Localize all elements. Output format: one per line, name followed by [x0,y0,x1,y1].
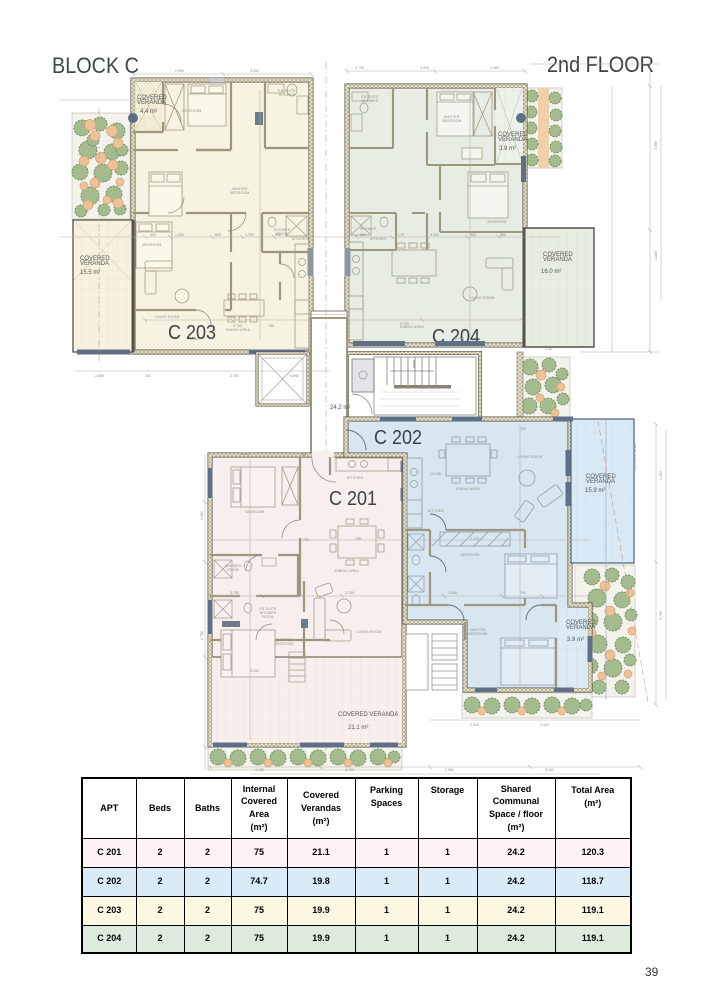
svg-text:KITCHEN: KITCHEN [370,237,387,241]
svg-text:800: 800 [215,233,221,237]
svg-text:900: 900 [275,233,281,237]
svg-text:3.700: 3.700 [233,324,242,328]
svg-text:900: 900 [470,233,476,237]
svg-text:2.750: 2.750 [355,66,364,70]
svg-text:3.150: 3.150 [255,768,264,772]
svg-text:10.245: 10.245 [430,472,441,476]
svg-text:OUTSIDE AREA: OUTSIDE AREA [633,443,637,470]
svg-text:4.150: 4.150 [659,471,663,480]
svg-text:ROOM: ROOM [262,615,273,619]
svg-text:1.700: 1.700 [245,233,254,237]
svg-text:ROOM: ROOM [227,568,238,572]
svg-text:3.750: 3.750 [345,591,354,595]
svg-text:3.750: 3.750 [230,591,239,595]
svg-text:COVERED VERANDA: COVERED VERANDA [338,712,398,718]
svg-text:2.750: 2.750 [200,631,204,640]
svg-text:2nd FLOOR: 2nd FLOOR [547,52,654,77]
svg-text:21.1 m²: 21.1 m² [348,725,368,731]
svg-text:LIVING ROOM: LIVING ROOM [518,455,543,459]
svg-text:SHOWER: SHOWER [362,99,379,103]
svg-text:3.9 m²: 3.9 m² [499,146,516,152]
svg-text:2.550: 2.550 [240,452,249,456]
svg-text:BEDROOM: BEDROOM [461,553,480,557]
svg-text:SHOWER: SHOWER [279,93,296,97]
svg-text:BLOCK C: BLOCK C [52,53,139,78]
svg-text:750: 750 [355,537,361,541]
svg-text:3.9 m²: 3.9 m² [567,637,584,643]
svg-text:3.40: 3.40 [545,347,552,351]
svg-text:16.0 m²: 16.0 m² [541,269,561,275]
svg-text:3.700: 3.700 [659,611,663,620]
svg-text:VERANDA: VERANDA [137,100,166,106]
svg-text:3.900: 3.900 [200,511,204,520]
svg-text:DINING AREA: DINING AREA [456,487,481,491]
svg-text:800: 800 [360,233,366,237]
svg-text:15.5 m²: 15.5 m² [80,270,100,276]
svg-text:3.100: 3.100 [540,723,549,727]
svg-text:C 202: C 202 [374,426,422,449]
svg-text:BEDROOM: BEDROOM [469,632,488,636]
svg-text:BEDROOM: BEDROOM [488,220,507,224]
svg-text:LIVING ROOM: LIVING ROOM [155,315,180,319]
svg-text:3.900: 3.900 [420,66,429,70]
svg-text:800: 800 [150,233,156,237]
svg-text:2.950: 2.950 [445,768,454,772]
svg-text:3.100: 3.100 [430,233,439,237]
svg-text:LIVING ROOM: LIVING ROOM [357,630,382,634]
svg-text:VERANDA: VERANDA [498,137,527,143]
svg-text:2.800: 2.800 [654,251,658,260]
svg-text:C 201: C 201 [329,487,377,510]
svg-text:15.9 m²: 15.9 m² [585,488,605,494]
svg-text:4.4 m²: 4.4 m² [140,109,157,115]
svg-text:6.850: 6.850 [290,374,299,378]
svg-text:DINING AREA: DINING AREA [226,328,251,332]
svg-text:BEDROOM: BEDROOM [246,510,265,514]
svg-text:BEDROOM: BEDROOM [275,642,294,646]
svg-text:3.100: 3.100 [545,768,554,772]
svg-text:1.170: 1.170 [470,537,479,541]
svg-text:BEDROOM: BEDROOM [143,243,162,247]
svg-text:250: 250 [520,591,526,595]
svg-text:BEDROOM: BEDROOM [443,119,462,123]
svg-text:KITCHEN: KITCHEN [347,476,364,480]
svg-text:240: 240 [145,374,151,378]
svg-text:3.750: 3.750 [345,768,354,772]
svg-text:VERANDA: VERANDA [80,261,109,267]
svg-text:2.950: 2.950 [190,337,199,341]
svg-text:3.900: 3.900 [250,69,259,73]
svg-text:3.750: 3.750 [230,374,239,378]
svg-text:1.170: 1.170 [395,233,404,237]
svg-text:2.850: 2.850 [95,374,104,378]
svg-text:750: 750 [300,453,306,457]
svg-text:SHOWER: SHOWER [360,227,377,231]
svg-text:2.750: 2.750 [455,337,464,341]
svg-text:1.450: 1.450 [175,233,184,237]
svg-text:LIVING ROOM: LIVING ROOM [470,296,495,300]
svg-text:3.700: 3.700 [400,322,409,326]
svg-text:3.950: 3.950 [654,141,658,150]
svg-text:DINING AREA: DINING AREA [335,569,360,573]
svg-text:BEDROOM: BEDROOM [183,109,202,113]
svg-text:1.750: 1.750 [300,538,309,542]
svg-text:5.150: 5.150 [250,669,259,673]
svg-text:1.000: 1.000 [490,66,499,70]
svg-text:2.800: 2.800 [448,591,457,595]
svg-text:VERANDA: VERANDA [566,625,595,631]
svg-text:KITCHEN: KITCHEN [428,509,445,513]
svg-text:VERANDA: VERANDA [586,479,615,485]
svg-text:750: 750 [268,324,274,328]
svg-text:750: 750 [520,427,526,431]
svg-text:KITCHEN: KITCHEN [292,237,309,241]
svg-text:2.950: 2.950 [175,69,184,73]
svg-text:VERANDA: VERANDA [543,257,572,263]
svg-text:2.850: 2.850 [470,723,479,727]
svg-text:BEDROOM: BEDROOM [231,191,250,195]
svg-text:24.2 m²: 24.2 m² [330,405,350,411]
svg-text:800: 800 [500,233,506,237]
